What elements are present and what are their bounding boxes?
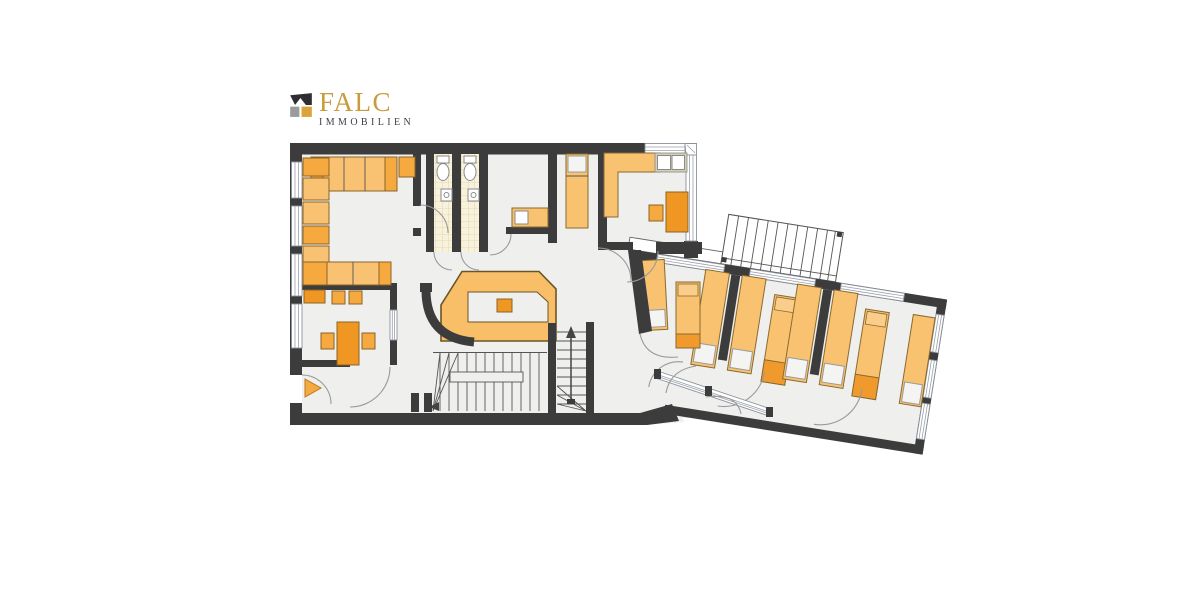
washbasin bbox=[468, 189, 479, 201]
wall-chair bbox=[349, 291, 362, 304]
falc-logo: FALC IMMOBILIEN bbox=[289, 90, 414, 128]
office-desk bbox=[337, 322, 359, 365]
single-bed bbox=[566, 154, 588, 228]
straight-staircase-up bbox=[548, 322, 594, 413]
logo-subtitle-text: IMMOBILIEN bbox=[319, 117, 414, 128]
corner-desk bbox=[666, 192, 688, 232]
bed bbox=[676, 282, 700, 348]
falc-roof-icon bbox=[289, 92, 313, 118]
floor-plan-page: FALC IMMOBILIEN bbox=[0, 0, 1200, 600]
toilet bbox=[437, 156, 449, 181]
logo-brand-text: FALC bbox=[319, 90, 414, 114]
office-cabinet bbox=[304, 290, 325, 303]
reception-counter bbox=[441, 272, 556, 342]
side-cabinet bbox=[399, 157, 415, 177]
washbasin bbox=[441, 189, 452, 201]
wall-chair bbox=[332, 291, 345, 304]
counter-item bbox=[497, 299, 512, 312]
desk-chair bbox=[321, 333, 334, 349]
corner-chair bbox=[649, 205, 663, 221]
floor-plan-drawing bbox=[0, 0, 1200, 600]
desk-chair bbox=[362, 333, 375, 349]
sideboard bbox=[512, 208, 548, 227]
entrance-opening bbox=[288, 375, 302, 403]
toilet bbox=[464, 156, 476, 181]
